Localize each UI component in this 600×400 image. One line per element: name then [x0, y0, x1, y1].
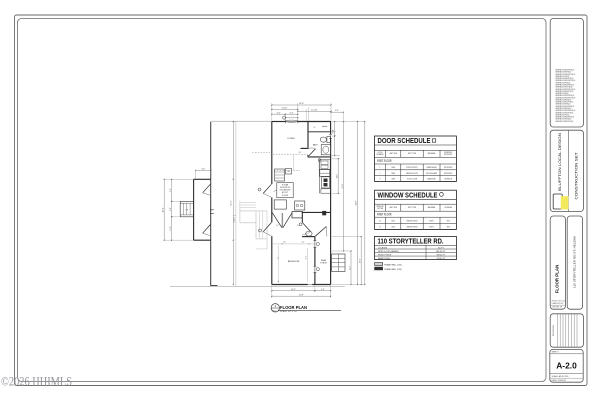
- svg-text:3050: 3050: [391, 220, 395, 222]
- svg-text:10'-10": 10'-10": [311, 110, 317, 112]
- svg-text:EXTERIOR: EXTERIOR: [444, 167, 453, 169]
- svg-text:1: 1: [380, 167, 381, 169]
- svg-text:AT EXT: AT EXT: [282, 191, 288, 194]
- svg-text:DW: DW: [287, 171, 290, 173]
- svg-text:SOLID CORE: SOLID CORE: [407, 179, 417, 181]
- svg-text:DATE: 2/18/2025: DATE: 2/18/2025: [552, 379, 566, 382]
- svg-text:FIRST FLOOR (HEATED): FIRST FLOOR (HEATED): [378, 250, 399, 253]
- svg-text:2030: 2030: [391, 226, 395, 228]
- svg-text:110 STORYTELLER RD ST. HELENA: 110 STORYTELLER RD ST. HELENA: [573, 235, 577, 288]
- svg-text:16'-5": 16'-5": [360, 258, 362, 263]
- svg-text:SCREENS: SCREENS: [444, 207, 452, 209]
- svg-text:FLOOR PLAN: FLOOR PLAN: [555, 265, 560, 294]
- svg-text:21'-6": 21'-6": [234, 216, 236, 221]
- svg-text:2668: 2668: [391, 179, 395, 181]
- svg-text:©2026 HHIMLS: ©2026 HHIMLS: [1, 374, 72, 389]
- svg-text:INTERIOR: INTERIOR: [444, 179, 452, 181]
- svg-text:YES: YES: [447, 220, 450, 222]
- svg-text:SQ. FT.: SQ. FT.: [438, 247, 445, 249]
- svg-text:PROJECT NO: 2402: PROJECT NO: 2402: [552, 301, 566, 303]
- svg-text:CL: CL: [313, 127, 315, 129]
- svg-text:SCALE: AS NOTED: SCALE: AS NOTED: [552, 375, 569, 378]
- svg-text:8'-0": 8'-0": [299, 152, 302, 154]
- svg-text:FRONT PORCH: FRONT PORCH: [378, 254, 392, 256]
- svg-text:54'-9": 54'-9": [356, 200, 358, 205]
- svg-text:SINGLE HUNG: SINGLE HUNG: [407, 226, 419, 228]
- svg-text:64 SQ. FT.: 64 SQ. FT.: [437, 258, 446, 260]
- svg-text:LIVING: LIVING: [287, 138, 294, 140]
- svg-text:3068: 3068: [391, 167, 395, 169]
- svg-text:DOORS: DOORS: [282, 195, 289, 197]
- svg-text:15'-9": 15'-9": [291, 289, 296, 291]
- svg-text:UNIT SIZE: UNIT SIZE: [389, 207, 397, 209]
- svg-text:21'-4": 21'-4": [342, 184, 344, 189]
- svg-text:4'-0": 4'-0": [335, 110, 339, 112]
- svg-text:B: B: [379, 226, 380, 228]
- svg-text:19'-8": 19'-8": [299, 294, 304, 296]
- svg-text:4'-6": 4'-6": [277, 112, 281, 114]
- svg-text:REAR PORCH: REAR PORCH: [378, 257, 391, 260]
- svg-text:WINDOW SCHEDULE: WINDOW SCHEDULE: [378, 192, 438, 199]
- svg-text:UNIT TYPE: UNIT TYPE: [408, 153, 416, 155]
- svg-text:6'-8": 6'-8": [283, 241, 286, 243]
- svg-text:88 SQ. FT.: 88 SQ. FT.: [437, 254, 446, 256]
- svg-text:VINYL: VINYL: [429, 226, 434, 228]
- svg-text:VINYL: VINYL: [429, 220, 434, 222]
- svg-text:7'-10": 7'-10": [170, 226, 172, 231]
- svg-text:4'-0": 4'-0": [302, 241, 305, 243]
- svg-text:EXTERIOR: EXTERIOR: [444, 173, 453, 175]
- svg-text:5'-2": 5'-2": [170, 207, 172, 211]
- svg-text:20'-4": 20'-4": [163, 207, 165, 212]
- svg-text:FRONT ENTRY: FRONT ENTRY: [406, 167, 418, 169]
- svg-text:2'-4": 2'-4": [276, 225, 279, 227]
- svg-text:DOOR SCHEDULE: DOOR SCHEDULE: [378, 138, 431, 145]
- svg-text:8'-10": 8'-10": [282, 108, 287, 110]
- svg-text:GENERAL NOTES SPE REQD: GENERAL NOTES SPE REQD: [555, 69, 575, 72]
- svg-text:REAR: REAR: [321, 259, 327, 262]
- svg-text:11'-7": 11'-7": [349, 265, 351, 270]
- svg-text:19'-8": 19'-8": [299, 103, 304, 105]
- svg-text:110 STORYTELLER RD.: 110 STORYTELLER RD.: [378, 239, 444, 246]
- svg-text:REVISIONS: REVISIONS: [553, 324, 555, 336]
- svg-text:3: 3: [380, 179, 381, 181]
- svg-text:FRAME WALL (2X4): FRAME WALL (2X4): [384, 263, 402, 266]
- svg-text:7'-4": 7'-4": [170, 188, 172, 192]
- svg-text:683 SQ. FT.: 683 SQ. FT.: [436, 251, 446, 253]
- svg-text:5'-0": 5'-0": [321, 289, 325, 291]
- svg-text:LOCATION: LOCATION: [378, 246, 388, 249]
- svg-text:2: 2: [380, 173, 381, 175]
- svg-text:FRENCH DOOR: FRENCH DOOR: [406, 173, 419, 175]
- svg-text:4'-2": 4'-2": [290, 112, 294, 114]
- svg-text:4'-0": 4'-0": [202, 169, 206, 171]
- svg-text:CONSTRUCTION SET: CONSTRUCTION SET: [575, 152, 579, 200]
- svg-text:UNIT TYPE: UNIT TYPE: [408, 207, 416, 209]
- svg-text:FLOOR PLAN: FLOOR PLAN: [280, 305, 307, 310]
- svg-text:UNIT SIZE: UNIT SIZE: [389, 153, 397, 155]
- svg-text:BLUFFTON LOCAL DESIGN: BLUFFTON LOCAL DESIGN: [558, 132, 562, 191]
- svg-text:SINGLE HUNG: SINGLE HUNG: [407, 220, 419, 222]
- svg-text:11'-6": 11'-6": [337, 174, 339, 179]
- svg-text:BATH: BATH: [313, 144, 318, 147]
- svg-text:2868: 2868: [391, 173, 395, 175]
- svg-text:BEDROOM: BEDROOM: [288, 261, 299, 263]
- svg-text:55'-0": 55'-0": [231, 200, 233, 205]
- svg-text:IF SLAB: IF SLAB: [282, 183, 289, 186]
- svg-text:11'-2": 11'-2": [306, 255, 308, 259]
- svg-text:FIRST FLOOR: FIRST FLOOR: [377, 159, 392, 163]
- svg-text:FRAME WALL (2X6): FRAME WALL (2X6): [384, 268, 402, 271]
- svg-text:A-2.0: A-2.0: [556, 360, 577, 370]
- svg-text:YES: YES: [447, 226, 450, 228]
- svg-text:UP: UP: [186, 209, 189, 211]
- svg-text:X36 LANDING: X36 LANDING: [280, 189, 292, 192]
- svg-text:SHEET #: SHEET #: [552, 352, 559, 354]
- svg-text:CHECKED: KH: CHECKED: KH: [552, 307, 562, 309]
- svg-text:PORCH: PORCH: [320, 263, 327, 265]
- svg-text:4'-10": 4'-10": [333, 129, 335, 134]
- svg-text:FIRST FLOOR: FIRST FLOOR: [377, 212, 392, 216]
